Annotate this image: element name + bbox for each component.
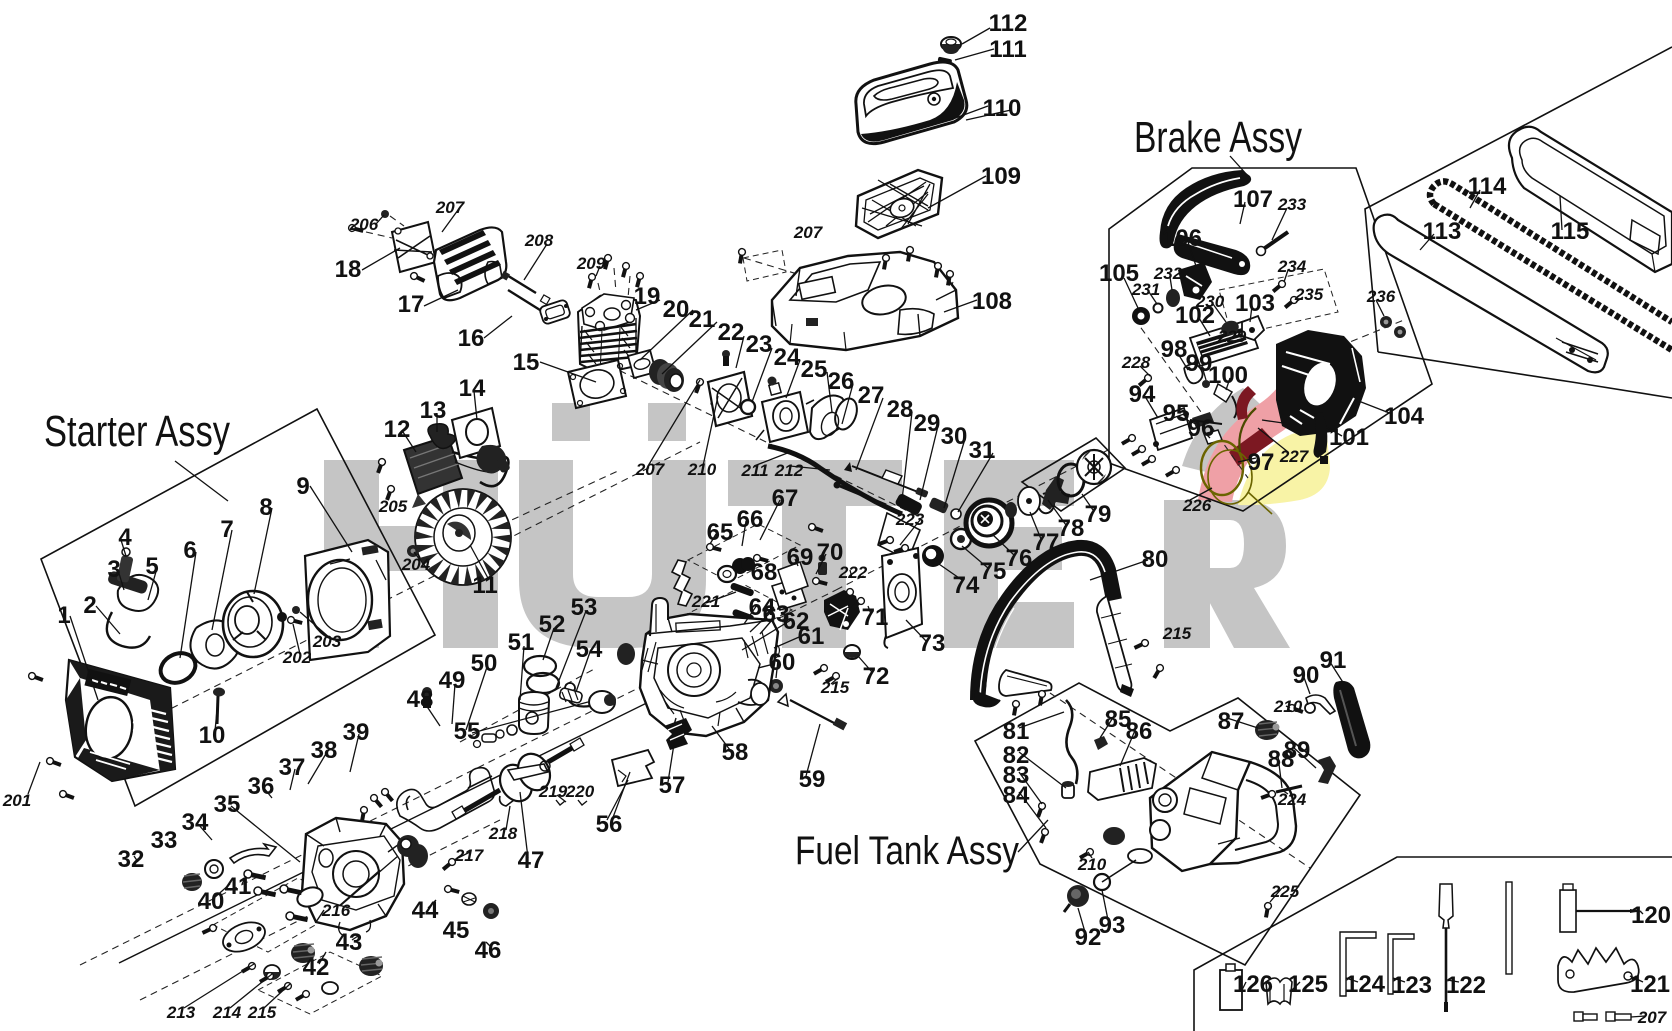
svg-text:28: 28 bbox=[887, 396, 914, 423]
svg-text:7: 7 bbox=[220, 516, 233, 543]
svg-text:36: 36 bbox=[248, 773, 275, 800]
svg-text:219: 219 bbox=[538, 782, 568, 801]
svg-text:227: 227 bbox=[1279, 447, 1310, 466]
svg-text:207: 207 bbox=[435, 198, 466, 217]
svg-text:71: 71 bbox=[862, 604, 889, 631]
svg-text:87: 87 bbox=[1218, 708, 1245, 735]
svg-text:220: 220 bbox=[565, 782, 595, 801]
svg-text:215: 215 bbox=[820, 678, 850, 697]
svg-text:25: 25 bbox=[801, 356, 828, 383]
svg-text:104: 104 bbox=[1384, 403, 1425, 430]
svg-text:210: 210 bbox=[1077, 855, 1107, 874]
svg-text:78: 78 bbox=[1058, 515, 1085, 542]
svg-text:211: 211 bbox=[740, 461, 768, 480]
svg-text:47: 47 bbox=[518, 847, 545, 874]
svg-text:213: 213 bbox=[166, 1003, 196, 1022]
svg-text:122: 122 bbox=[1446, 972, 1486, 999]
svg-text:67: 67 bbox=[772, 485, 799, 512]
svg-text:75: 75 bbox=[980, 558, 1007, 585]
svg-text:77: 77 bbox=[1033, 529, 1060, 556]
svg-text:59: 59 bbox=[799, 766, 826, 793]
svg-text:212: 212 bbox=[774, 461, 804, 480]
svg-text:209: 209 bbox=[576, 254, 606, 273]
svg-text:113: 113 bbox=[1423, 218, 1462, 245]
svg-text:230: 230 bbox=[1195, 292, 1225, 311]
svg-text:206: 206 bbox=[349, 215, 379, 234]
svg-text:38: 38 bbox=[311, 737, 338, 764]
svg-text:Brake Assy: Brake Assy bbox=[1134, 113, 1302, 162]
svg-text:37: 37 bbox=[279, 754, 306, 781]
svg-text:123: 123 bbox=[1392, 972, 1432, 999]
svg-text:74: 74 bbox=[953, 572, 980, 599]
svg-text:226: 226 bbox=[1182, 496, 1212, 515]
svg-text:228: 228 bbox=[1121, 353, 1151, 372]
svg-text:23: 23 bbox=[746, 331, 773, 358]
svg-text:223: 223 bbox=[895, 510, 925, 529]
svg-text:26: 26 bbox=[828, 368, 855, 395]
svg-text:215: 215 bbox=[247, 1003, 277, 1022]
svg-text:217: 217 bbox=[454, 846, 485, 865]
svg-text:233: 233 bbox=[1277, 195, 1307, 214]
svg-text:65: 65 bbox=[707, 519, 734, 546]
svg-text:207: 207 bbox=[635, 460, 666, 479]
svg-text:17: 17 bbox=[398, 291, 425, 318]
svg-text:34: 34 bbox=[182, 809, 209, 836]
svg-text:92: 92 bbox=[1075, 924, 1102, 951]
svg-text:72: 72 bbox=[863, 663, 890, 690]
svg-text:42: 42 bbox=[303, 954, 330, 981]
svg-text:3: 3 bbox=[107, 556, 120, 583]
svg-text:208: 208 bbox=[524, 231, 554, 250]
svg-text:205: 205 bbox=[378, 497, 408, 516]
svg-text:236: 236 bbox=[1366, 287, 1396, 306]
svg-text:39: 39 bbox=[343, 719, 370, 746]
svg-text:14: 14 bbox=[459, 375, 486, 402]
svg-text:57: 57 bbox=[659, 772, 686, 799]
svg-text:33: 33 bbox=[151, 827, 178, 854]
svg-text:54: 54 bbox=[576, 636, 603, 663]
svg-text:30: 30 bbox=[941, 423, 968, 450]
svg-text:41: 41 bbox=[225, 873, 252, 900]
svg-text:214: 214 bbox=[212, 1003, 242, 1022]
svg-text:120: 120 bbox=[1631, 902, 1671, 929]
svg-text:115: 115 bbox=[1551, 218, 1590, 245]
svg-text:8: 8 bbox=[259, 494, 272, 521]
svg-text:221: 221 bbox=[691, 592, 720, 611]
svg-text:222: 222 bbox=[838, 563, 868, 582]
svg-text:50: 50 bbox=[471, 650, 498, 677]
svg-text:12: 12 bbox=[384, 416, 411, 443]
svg-text:22: 22 bbox=[718, 319, 745, 346]
svg-text:234: 234 bbox=[1277, 257, 1307, 276]
svg-text:Fuel Tank Assy: Fuel Tank Assy bbox=[795, 829, 1019, 873]
svg-text:70: 70 bbox=[817, 539, 844, 566]
svg-text:55: 55 bbox=[454, 718, 481, 745]
svg-text:16: 16 bbox=[458, 325, 485, 352]
svg-text:112: 112 bbox=[989, 10, 1028, 37]
svg-text:108: 108 bbox=[972, 288, 1012, 315]
svg-text:53: 53 bbox=[571, 594, 598, 621]
svg-text:1: 1 bbox=[57, 602, 70, 629]
svg-text:125: 125 bbox=[1288, 971, 1328, 998]
svg-text:103: 103 bbox=[1235, 290, 1275, 317]
svg-text:29: 29 bbox=[914, 410, 941, 437]
svg-text:203: 203 bbox=[312, 632, 342, 651]
svg-text:97: 97 bbox=[1248, 449, 1275, 476]
svg-text:44: 44 bbox=[412, 897, 439, 924]
svg-text:21: 21 bbox=[689, 306, 716, 333]
svg-text:225: 225 bbox=[1270, 882, 1300, 901]
svg-text:121: 121 bbox=[1630, 971, 1670, 998]
svg-text:109: 109 bbox=[981, 163, 1021, 190]
svg-text:13: 13 bbox=[420, 397, 447, 424]
svg-text:96: 96 bbox=[1188, 415, 1215, 442]
svg-text:69: 69 bbox=[787, 544, 814, 571]
svg-text:19: 19 bbox=[634, 283, 661, 310]
svg-text:111: 111 bbox=[989, 36, 1026, 63]
svg-text:93: 93 bbox=[1099, 912, 1126, 939]
svg-text:126: 126 bbox=[1233, 971, 1273, 998]
svg-text:9: 9 bbox=[296, 473, 309, 500]
svg-text:27: 27 bbox=[858, 382, 885, 409]
svg-text:84: 84 bbox=[1003, 782, 1030, 809]
svg-text:86: 86 bbox=[1126, 718, 1153, 745]
svg-text:235: 235 bbox=[1294, 285, 1324, 304]
svg-text:216: 216 bbox=[321, 901, 351, 920]
svg-text:207: 207 bbox=[793, 223, 824, 242]
svg-text:18: 18 bbox=[335, 256, 362, 283]
svg-text:124: 124 bbox=[1345, 971, 1386, 998]
svg-text:110: 110 bbox=[983, 95, 1022, 122]
svg-text:40: 40 bbox=[198, 888, 225, 915]
svg-text:35: 35 bbox=[214, 791, 241, 818]
svg-text:46: 46 bbox=[475, 937, 502, 964]
svg-text:224: 224 bbox=[1277, 790, 1307, 809]
svg-text:24: 24 bbox=[774, 344, 801, 371]
svg-text:15: 15 bbox=[513, 349, 540, 376]
svg-text:76: 76 bbox=[1006, 545, 1033, 572]
svg-text:95: 95 bbox=[1163, 400, 1190, 427]
svg-text:107: 107 bbox=[1233, 186, 1273, 213]
svg-text:94: 94 bbox=[1129, 381, 1156, 408]
svg-text:98: 98 bbox=[1161, 336, 1188, 363]
svg-text:68: 68 bbox=[751, 559, 778, 586]
svg-text:6: 6 bbox=[183, 537, 196, 564]
svg-text:215: 215 bbox=[1162, 624, 1192, 643]
svg-text:201: 201 bbox=[2, 791, 31, 810]
svg-text:64: 64 bbox=[749, 594, 776, 621]
svg-text:232: 232 bbox=[1153, 264, 1183, 283]
svg-text:52: 52 bbox=[539, 611, 566, 638]
svg-text:32: 32 bbox=[118, 846, 145, 873]
svg-text:80: 80 bbox=[1142, 546, 1169, 573]
svg-text:11: 11 bbox=[472, 572, 497, 599]
svg-text:218: 218 bbox=[488, 824, 518, 843]
svg-text:60: 60 bbox=[769, 649, 796, 676]
svg-text:Starter Assy: Starter Assy bbox=[44, 407, 230, 456]
svg-text:229: 229 bbox=[1217, 327, 1247, 346]
svg-text:90: 90 bbox=[1293, 662, 1320, 689]
svg-text:202: 202 bbox=[282, 648, 312, 667]
svg-text:45: 45 bbox=[443, 917, 470, 944]
svg-text:10: 10 bbox=[199, 722, 226, 749]
svg-text:31: 31 bbox=[969, 437, 996, 464]
svg-text:51: 51 bbox=[508, 629, 535, 656]
svg-text:81: 81 bbox=[1003, 718, 1030, 745]
svg-text:73: 73 bbox=[919, 630, 946, 657]
svg-text:79: 79 bbox=[1085, 501, 1112, 528]
svg-text:4: 4 bbox=[118, 524, 132, 551]
svg-text:89: 89 bbox=[1284, 737, 1311, 764]
svg-text:58: 58 bbox=[722, 739, 749, 766]
svg-text:48: 48 bbox=[407, 686, 434, 713]
svg-text:49: 49 bbox=[439, 667, 466, 694]
svg-text:66: 66 bbox=[737, 506, 764, 533]
svg-text:106: 106 bbox=[1162, 225, 1202, 252]
svg-text:114: 114 bbox=[1468, 173, 1507, 200]
svg-text:20: 20 bbox=[663, 296, 690, 323]
svg-text:91: 91 bbox=[1320, 647, 1347, 674]
svg-text:204: 204 bbox=[401, 555, 431, 574]
svg-text:210: 210 bbox=[687, 460, 717, 479]
svg-text:43: 43 bbox=[336, 929, 363, 956]
svg-text:210: 210 bbox=[1273, 697, 1303, 716]
svg-text:2: 2 bbox=[83, 592, 96, 619]
svg-text:100: 100 bbox=[1208, 362, 1248, 389]
svg-text:207: 207 bbox=[1637, 1008, 1668, 1027]
svg-text:101: 101 bbox=[1329, 424, 1369, 451]
svg-text:5: 5 bbox=[145, 553, 158, 580]
svg-text:56: 56 bbox=[596, 811, 623, 838]
